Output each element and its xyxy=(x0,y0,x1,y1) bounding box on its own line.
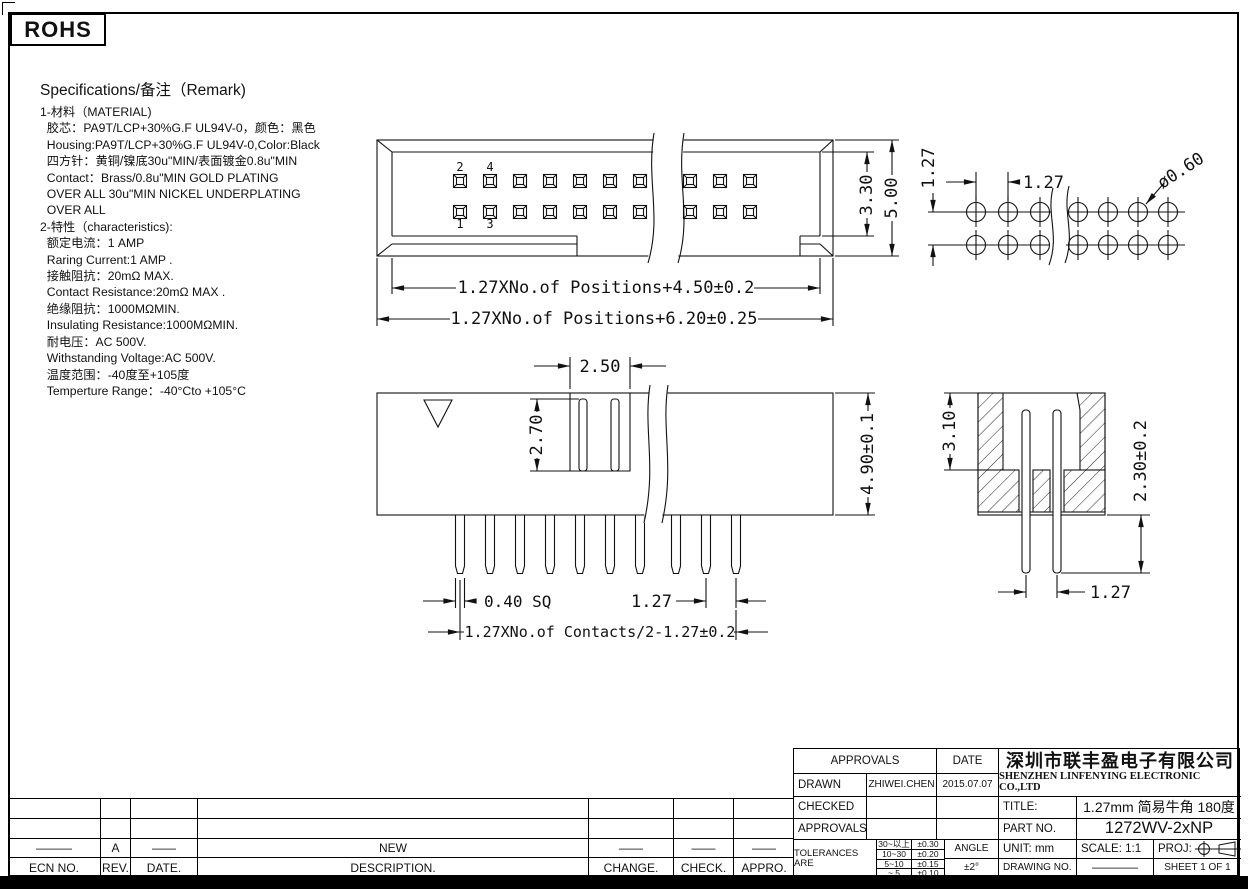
pin-number-1: 1 xyxy=(456,217,463,231)
tolerance-value: ±0.10 xyxy=(911,868,944,877)
drawing-no-value: ———— xyxy=(1076,858,1153,877)
dim-hole-col-pitch: 1.27 xyxy=(1023,173,1064,193)
rev-change-value: —— xyxy=(588,838,673,857)
title-value: 1.27mm 简易牛角 180度 xyxy=(1076,796,1241,818)
part-no-label: PART NO. xyxy=(998,818,1076,839)
tolerance-value: ±0.15 xyxy=(911,859,944,868)
table-cell xyxy=(130,818,197,838)
rev-header-ecn: ECN NO. xyxy=(8,857,100,877)
pin-number-4: 4 xyxy=(486,160,493,174)
unit-label: UNIT: mm xyxy=(998,839,1076,858)
dim-section-pin-pitch: 1.27 xyxy=(1090,583,1131,603)
top-view: 2 4 1 3 3.30 5.00 1.27XNo.of Positions+4… xyxy=(377,133,902,329)
tolerance-range: 5~10 xyxy=(876,859,911,868)
rev-check-value: —— xyxy=(673,838,733,857)
drawn-date-value: 2015.07.07 xyxy=(936,773,998,796)
rev-header-description: DESCRIPTION. xyxy=(197,857,588,877)
dim-top-outer-width: 1.27XNo.of Positions+6.20±0.25 xyxy=(450,309,757,329)
dim-front-pin-square: 0.40 SQ xyxy=(484,592,551,611)
table-cell xyxy=(8,798,100,818)
pin-number-2: 2 xyxy=(456,160,463,174)
tolerance-value: ±0.20 xyxy=(911,849,944,859)
front-view: 2.50 2.70 4.90±0.1 0.40 SQ 1.27 1.27XNo.… xyxy=(377,357,878,641)
dim-front-slot-depth: 2.70 xyxy=(527,415,547,456)
pcb-hole-pattern: 1.27 1.27 ø0.60 xyxy=(919,148,1208,266)
drawing-no-label: DRAWING NO. xyxy=(998,858,1076,877)
rev-ecn-value: ——— xyxy=(8,838,100,857)
drawn-by-value: ZHIWEI.CHEN xyxy=(866,773,936,796)
checked-date-value xyxy=(936,796,998,818)
checked-by-value xyxy=(866,796,936,818)
dim-section-cavity-depth: 3.10 xyxy=(940,411,960,452)
table-cell xyxy=(733,798,794,818)
table-cell xyxy=(8,818,100,838)
table-cell xyxy=(733,818,794,838)
polarity-triangle-mark xyxy=(424,400,452,427)
dim-front-slot-width: 2.50 xyxy=(580,357,621,377)
title-label: TITLE: xyxy=(998,796,1076,818)
rev-appro-value: —— xyxy=(733,838,794,857)
projection-cell: PROJ: xyxy=(1153,839,1241,858)
dim-section-pin-length: 2.30±0.2 xyxy=(1131,420,1151,502)
table-cell xyxy=(197,818,588,838)
rev-description-value: NEW xyxy=(197,838,588,857)
checked-label: CHECKED xyxy=(794,796,866,818)
pin-number-3: 3 xyxy=(486,217,493,231)
dim-hole-diameter: ø0.60 xyxy=(1154,149,1208,194)
dim-top-outer-height: 5.00 xyxy=(882,178,902,219)
company-name-cn: 深圳市联丰盈电子有限公司 xyxy=(1006,752,1234,771)
tolerance-range: 30~以上 xyxy=(876,839,911,849)
proj-label: PROJ: xyxy=(1158,843,1192,855)
table-cell xyxy=(100,818,130,838)
rev-header-change: CHANGE. xyxy=(588,857,673,877)
rev-letter: A xyxy=(100,838,130,857)
rev-header-rev: REV. xyxy=(100,857,130,877)
tolerance-range: ~ 5 xyxy=(876,868,911,877)
sheet-label: SHEET 1 OF 1 xyxy=(1153,858,1241,877)
dim-top-inner-height: 3.30 xyxy=(857,175,877,216)
angle-value: ±2° xyxy=(944,858,998,877)
rev-header-check: CHECK. xyxy=(673,857,733,877)
angle-label: ANGLE xyxy=(944,839,998,858)
drawn-label: DRAWN xyxy=(794,773,866,796)
table-cell xyxy=(673,818,733,838)
company-block: 深圳市联丰盈电子有限公司 SHENZHEN LINFENYING ELECTRO… xyxy=(998,749,1241,796)
table-cell xyxy=(588,798,673,818)
dim-top-inner-width: 1.27XNo.of Positions+4.50±0.2 xyxy=(458,278,755,298)
front-view-pins xyxy=(456,515,741,574)
company-name-en: SHENZHEN LINFENYING ELECTRONIC CO.,LTD xyxy=(999,771,1241,793)
rev-header-appro: APPRO. xyxy=(733,857,794,877)
table-cell xyxy=(673,798,733,818)
part-no-value: 1272WV-2xNP xyxy=(1076,818,1241,839)
dim-front-body-height: 4.90±0.1 xyxy=(858,413,878,495)
scale-label: SCALE: 1:1 xyxy=(1076,839,1153,858)
approvals-header: APPROVALS xyxy=(794,749,936,773)
date-header: DATE xyxy=(936,749,998,773)
table-cell xyxy=(588,818,673,838)
drawing-sheet: ROHS Specifications/备注（Remark) 1-材料（MATE… xyxy=(0,0,1248,889)
approvals-by-value xyxy=(866,818,936,839)
tolerances-label: TOLERANCES ARE xyxy=(794,839,876,877)
table-cell xyxy=(197,798,588,818)
approvals-date-value xyxy=(936,818,998,839)
title-block: APPROVALS DATE 深圳市联丰盈电子有限公司 SHENZHEN LIN… xyxy=(793,748,1240,878)
dim-front-pin-pitch: 1.27 xyxy=(631,592,672,612)
revision-table: ——— A —— NEW —— —— —— ECN NO. REV. DATE.… xyxy=(8,798,794,877)
section-view: 3.10 2.30±0.2 1.27 xyxy=(940,393,1151,603)
rev-date-value: —— xyxy=(130,838,197,857)
top-view-pins xyxy=(454,175,757,219)
approvals-label: APPROVALS xyxy=(794,818,866,839)
table-cell xyxy=(130,798,197,818)
third-angle-projection-icon xyxy=(1195,841,1241,857)
rev-header-date: DATE. xyxy=(130,857,197,877)
table-cell xyxy=(100,798,130,818)
dim-hole-row-pitch: 1.27 xyxy=(919,148,939,189)
tolerance-range: 10~30 xyxy=(876,849,911,859)
drawing-canvas: 2 4 1 3 3.30 5.00 1.27XNo.of Positions+4… xyxy=(0,0,1248,760)
tolerance-value: ±0.30 xyxy=(911,839,944,849)
dim-front-span: 1.27XNo.of Contacts/2-1.27±0.2 xyxy=(465,623,736,641)
